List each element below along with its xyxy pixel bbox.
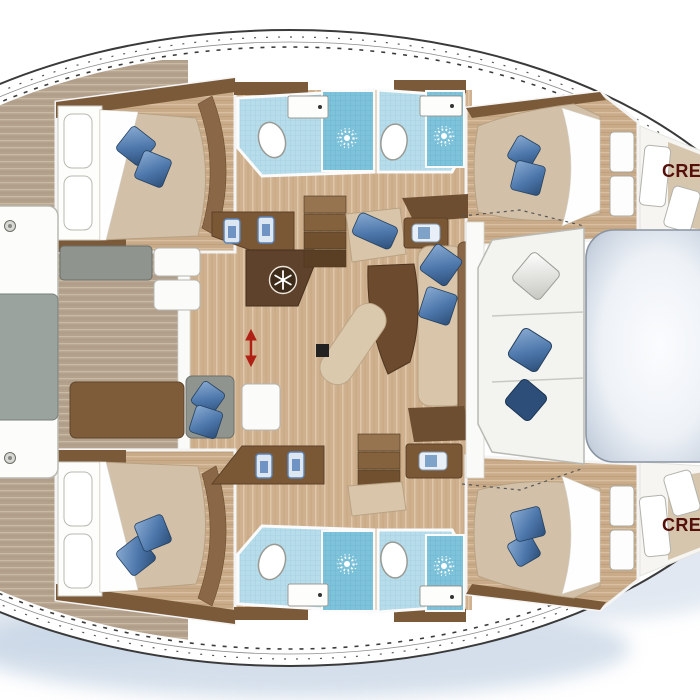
locker-door xyxy=(610,176,634,216)
port-bathrooms xyxy=(234,80,466,176)
foredeck xyxy=(462,210,700,490)
galley-fwd-counter xyxy=(408,406,472,442)
locker-door xyxy=(610,530,634,570)
bed-pillow xyxy=(64,534,92,588)
floorplan-canvas: CREW CREW xyxy=(0,0,700,700)
faucet xyxy=(450,104,454,108)
island-bed xyxy=(58,106,206,240)
bed-pillow xyxy=(64,472,92,526)
crew-label-top: CREW xyxy=(662,161,700,181)
port-forward-cabin xyxy=(466,92,638,246)
locker-door xyxy=(610,132,634,172)
cockpit-table xyxy=(70,382,184,438)
island-bed xyxy=(58,462,206,596)
port-crew-cabin xyxy=(639,126,700,240)
shower-stall xyxy=(322,91,374,171)
snowflake-icon xyxy=(270,267,297,294)
cockpit-seat-gray xyxy=(60,246,152,280)
dinette-bench xyxy=(348,482,406,516)
locker-door xyxy=(610,486,634,526)
floor-hatch xyxy=(316,344,329,357)
starboard-bathrooms xyxy=(234,526,466,622)
sink xyxy=(420,586,462,606)
port-aft-cabin xyxy=(56,78,235,252)
catamaran-floorplan: CREW CREW xyxy=(0,0,700,700)
sink xyxy=(420,96,462,116)
cockpit-module xyxy=(154,248,200,276)
cockpit-module xyxy=(242,384,280,430)
bench-cushion xyxy=(0,294,58,420)
bed-pillow xyxy=(64,114,92,168)
trampoline xyxy=(586,230,700,462)
starboard-aft-cabin xyxy=(56,450,235,624)
crew-label-bottom: CREW xyxy=(662,515,700,535)
bed-pillow xyxy=(64,176,92,230)
faucet xyxy=(318,105,322,109)
cockpit-module xyxy=(154,280,200,310)
